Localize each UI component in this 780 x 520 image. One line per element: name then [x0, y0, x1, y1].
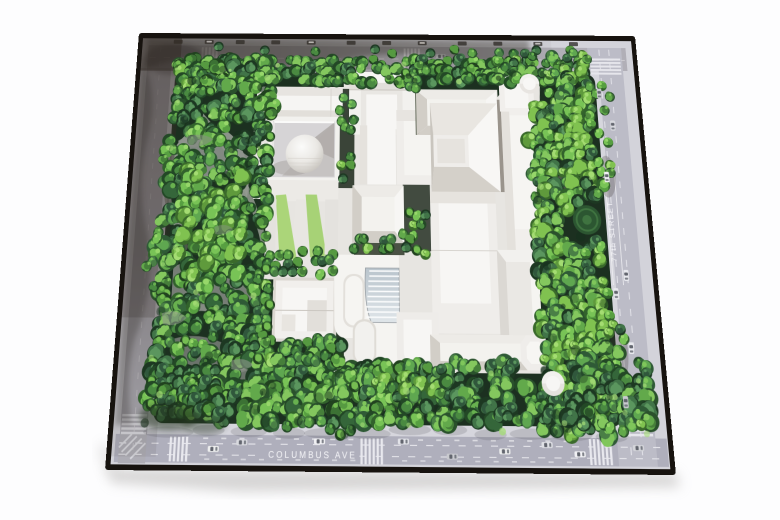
svg-text:COLUMBUS AVE: COLUMBUS AVE [268, 451, 357, 461]
